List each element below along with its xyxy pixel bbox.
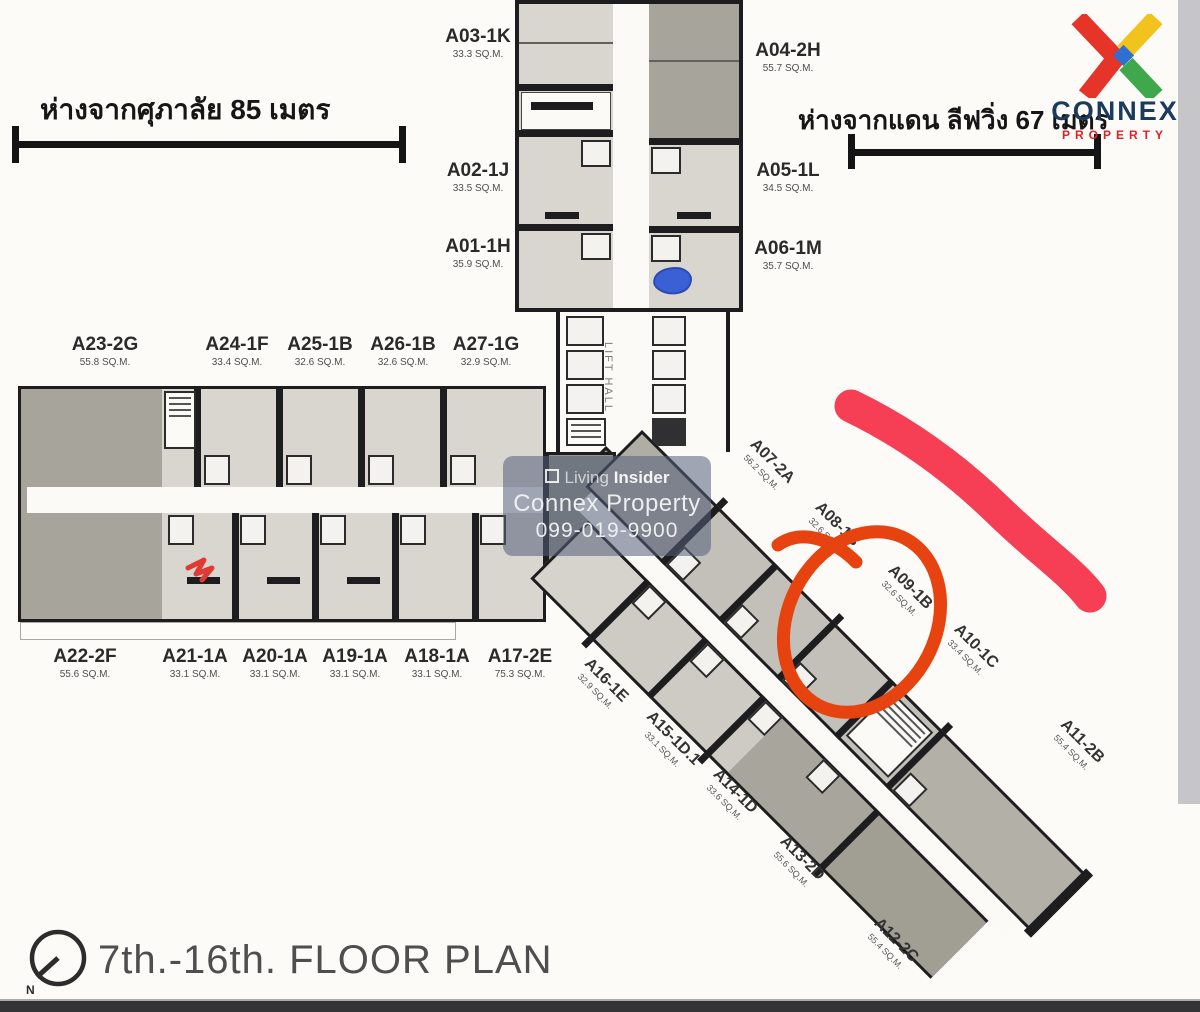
corridor [613, 4, 649, 308]
bathroom [168, 515, 194, 545]
wall [358, 389, 365, 487]
watermark-company: Connex Property [503, 490, 711, 518]
lift-shaft [652, 384, 686, 414]
unit-label: A01-1H 35.9 SQ.M. [438, 236, 518, 270]
floor-plan-title: 7th.-16th. FLOOR PLAN [98, 938, 553, 983]
wall [312, 513, 319, 619]
connex-logo: CONNEX PROPERTY [1040, 14, 1190, 148]
unit-label: A06-1M 35.7 SQ.M. [748, 238, 828, 272]
wall [276, 389, 283, 487]
unit-label: A20-1A 33.1 SQ.M. [229, 646, 321, 680]
lift-shaft [566, 316, 604, 346]
bathroom [286, 455, 312, 485]
lift-hall-label: LIFT HALL [602, 342, 614, 413]
wall [440, 389, 447, 487]
bathroom [320, 515, 346, 545]
lift-shaft [652, 350, 686, 380]
unit-label: A03-1K 33.3 SQ.M. [438, 26, 518, 60]
bathroom [581, 233, 611, 260]
unit-label: A05-1L 34.5 SQ.M. [748, 160, 828, 194]
lift-shaft [566, 350, 604, 380]
unit-label: A22-2F 55.6 SQ.M. [39, 646, 131, 680]
bathroom [651, 147, 681, 174]
wall [267, 577, 300, 584]
wall [531, 102, 593, 110]
wall [649, 226, 739, 233]
unit-label: A27-1G 32.9 SQ.M. [440, 334, 532, 368]
north-wing [515, 0, 743, 312]
balcony-line [20, 622, 456, 640]
wall [677, 212, 711, 219]
bathroom [368, 455, 394, 485]
watermark: Living Insider Connex Property 099-019-9… [503, 456, 711, 556]
service-shaft [652, 418, 686, 446]
compass-north-letter: N [26, 983, 35, 997]
wall [519, 42, 613, 44]
unit-label: A26-1B 32.6 SQ.M. [357, 334, 449, 368]
distance-label-left: ห่างจากศุภาลัย 85 เมตร [40, 88, 330, 132]
bathroom [450, 455, 476, 485]
floor-plan-page: ห่างจากศุภาลัย 85 เมตร ห่างจากแดน ลีฟวิ่… [0, 0, 1200, 1012]
unit-label: A25-1B 32.6 SQ.M. [274, 334, 366, 368]
connex-x-icon [1060, 14, 1180, 98]
stairwell [566, 418, 606, 446]
bar-line [14, 141, 406, 148]
unit-label: A21-1A 33.1 SQ.M. [149, 646, 241, 680]
wall [649, 60, 739, 62]
bar-tick-right [399, 126, 406, 163]
bathroom [240, 515, 266, 545]
unit-block-A04 [649, 4, 739, 138]
bathroom [581, 140, 611, 167]
watermark-brand: Living Insider [503, 468, 711, 488]
living-insider-cube-icon [545, 469, 559, 483]
right-edge-band [1178, 0, 1200, 804]
wall [519, 84, 613, 91]
wall [649, 138, 739, 145]
wall [545, 212, 579, 219]
unit-label: A04-2H 55.7 SQ.M. [748, 40, 828, 74]
unit-label: A24-1F 33.4 SQ.M. [191, 334, 283, 368]
bathroom [204, 455, 230, 485]
wall [392, 513, 399, 619]
corridor [27, 487, 543, 513]
wall [519, 130, 613, 137]
bar-line [851, 149, 1099, 156]
west-wing [18, 386, 546, 622]
bar-tick-left [12, 126, 19, 163]
wall [187, 577, 220, 584]
wall [347, 577, 380, 584]
logo-title: CONNEX [1040, 96, 1190, 127]
unit-label: A02-1J 33.5 SQ.M. [438, 160, 518, 194]
stairwell [164, 391, 196, 449]
compass-icon: N [24, 928, 94, 1000]
bottom-edge-bar [0, 999, 1200, 1012]
wall [232, 513, 239, 619]
unit-label: A23-2G 55.8 SQ.M. [59, 334, 151, 368]
wall [472, 513, 479, 619]
unit-label: A19-1A 33.1 SQ.M. [309, 646, 401, 680]
utility-room [521, 92, 611, 130]
watermark-phone: 099-019-9900 [503, 519, 711, 543]
unit-label: A10-1C 33.4 SQ.M. [925, 603, 1019, 697]
unit-label: A11-2B 55.4 SQ.M. [1031, 698, 1125, 792]
unit-label: A17-2E 75.3 SQ.M. [474, 646, 566, 680]
wall [519, 224, 613, 231]
logo-subtitle: PROPERTY [1040, 128, 1190, 142]
bathroom [400, 515, 426, 545]
lift-shaft [652, 316, 686, 346]
unit-label: A18-1A 33.1 SQ.M. [391, 646, 483, 680]
bathroom [651, 235, 681, 262]
lift-shaft [566, 384, 604, 414]
